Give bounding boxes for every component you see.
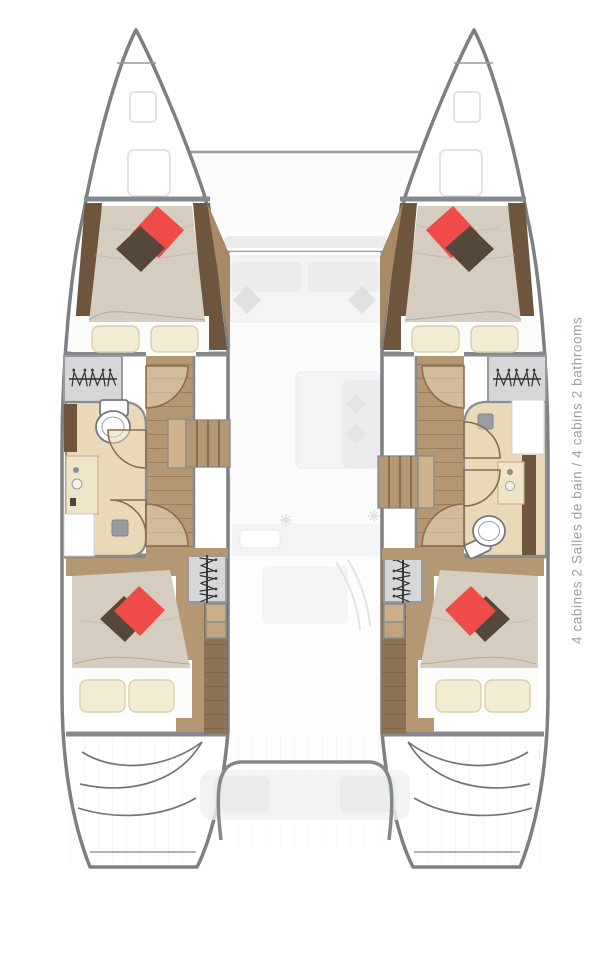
plan-caption: 4 cabines 2 Salles de bain / 4 cabins 2 …: [564, 280, 590, 680]
floorplan-svg: [0, 0, 608, 960]
wardrobe: [488, 356, 546, 402]
wardrobe: [64, 356, 122, 402]
sink-icon: [498, 462, 524, 504]
shower-drain-icon: [112, 520, 128, 536]
companionway-steps: [168, 419, 230, 468]
port-aft-cabin: [66, 555, 228, 734]
companionway-steps: [378, 456, 434, 508]
starboard-aft-cabin: [382, 555, 544, 734]
port-bathroom: [64, 400, 146, 556]
starboard-forward-cabin: [383, 203, 539, 352]
port-forward-cabin: [71, 203, 227, 352]
catamaran-floorplan: 4 cabines 2 Salles de bain / 4 cabins 2 …: [0, 0, 608, 960]
starboard-bathroom: [464, 400, 546, 559]
sink-icon: [66, 456, 98, 514]
